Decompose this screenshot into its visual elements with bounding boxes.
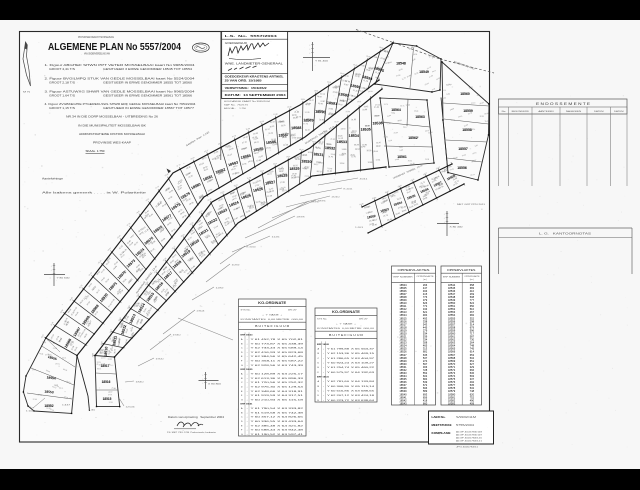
svg-text:17.74: 17.74 [303,123,308,125]
svg-text:Y 62 928,56: Y 62 928,56 [251,365,277,367]
svg-text:10.91: 10.91 [351,134,356,136]
svg-text:GOEDGEKEUR: GOEDGEKEUR [225,42,247,45]
svg-text:X 63 688,65: X 63 688,65 [351,391,375,393]
svg-text:+: + [202,378,203,380]
svg-text:G: G [241,399,243,401]
svg-text:8.47: 8.47 [388,123,391,125]
svg-text:Y 62 153,36: Y 62 153,36 [327,353,350,355]
svg-text:Y 61 286,65: Y 61 286,65 [327,358,350,360]
svg-text:GESITUEER IN ERWE GENOMMER 185: GESITUEER IN ERWE GENOMMER 18561 TOT 185… [103,94,193,97]
svg-text:ALGF 4045784/120: ALGF 4045784/120 [456,437,483,440]
svg-text:Y 62 976,30: Y 62 976,30 [251,386,277,388]
svg-text:M N: M N [23,92,31,94]
svg-text:L.S. No. 5557/2004: L.S. No. 5557/2004 [225,34,278,38]
svg-text:HOUDANIGE KAART No 9965/2004: HOUDANIGE KAART No 9965/2004 [224,100,271,103]
svg-text:1:437: 1:437 [62,405,71,407]
svg-text:E-3010: E-3010 [247,247,257,249]
svg-text:20.22: 20.22 [408,160,412,162]
svg-text:+: + [444,221,445,223]
svg-text:X 63 433,64: X 63 433,64 [277,421,304,423]
svg-text:+: + [444,217,445,219]
svg-text:33.83: 33.83 [108,359,112,361]
svg-text:13.69: 13.69 [342,149,347,151]
svg-text:24.57: 24.57 [305,130,310,132]
svg-text:34.14: 34.14 [47,339,51,341]
svg-text:10.39: 10.39 [273,114,277,116]
svg-text:21.13: 21.13 [471,102,475,104]
svg-text:18515: 18515 [103,397,112,401]
svg-text:29.44: 29.44 [365,125,370,127]
svg-text:IN DIE MUNISIPALITEIT MOSSELBA: IN DIE MUNISIPALITEIT MOSSELBAAI BK [78,123,146,127]
svg-text:Y 60 128,89: Y 60 128,89 [251,374,277,376]
svg-text:14.12: 14.12 [338,138,343,140]
svg-text:Y 81 400: Y 81 400 [315,61,329,63]
svg-text:18.89: 18.89 [297,138,302,140]
svg-text:Y 60 616,86: Y 60 616,86 [327,391,350,393]
svg-text:Y 60 588,44: Y 60 588,44 [251,430,277,432]
svg-text:11.86: 11.86 [362,144,367,146]
svg-text:21.76: 21.76 [327,168,332,170]
svg-text:DATUM: DATUM [614,110,624,113]
svg-text:Y 60 358,11: Y 60 358,11 [251,361,277,363]
svg-text:14.67: 14.67 [100,349,102,354]
svg-text:21.86: 21.86 [294,112,299,114]
svg-text:KOMPILASIE: KOMPILASIE [432,431,451,435]
svg-text:X 63 597,41: X 63 597,41 [277,434,304,436]
svg-text:31.49: 31.49 [53,348,57,350]
svg-text:Y 61 452,78: Y 61 452,78 [251,339,277,341]
svg-text:+: + [202,374,203,376]
svg-text:X 64 826,65: X 64 826,65 [277,417,304,419]
svg-text:X 80 800: X 80 800 [208,384,222,386]
svg-text:ERF 18520: ERF 18520 [317,344,330,346]
svg-text:17.52: 17.52 [375,104,380,106]
svg-text:26.91: 26.91 [32,369,36,371]
svg-text:G: G [241,434,243,436]
svg-text:X 63 404,97: X 63 404,97 [351,358,375,360]
svg-text:Y 62 384,56: Y 62 384,56 [251,356,277,358]
svg-text:X 65 563,37: X 65 563,37 [351,349,375,351]
svg-text:31.69: 31.69 [32,399,36,401]
svg-text:4. Figuur ZVGBKEGHIE PTGEREKLS: 4. Figuur ZVGBKEGHIE PTGEREKLSWL SHWR ER… [45,103,197,106]
svg-text:660: 660 [423,401,428,405]
svg-text:30.12: 30.12 [97,368,101,370]
svg-text:X 64 192,63: X 64 192,63 [351,372,375,374]
svg-text:P.S. SMIT PR.L 1234 Professi: P.S. SMIT PR.L 1234 Professionele Landme… [167,431,216,434]
svg-text:29.93: 29.93 [317,96,322,98]
svg-text:Y 62 781,60: Y 62 781,60 [327,381,350,383]
svg-text:33.17: 33.17 [302,155,307,157]
svg-text:23.80: 23.80 [414,111,418,113]
svg-text:31.83: 31.83 [351,119,356,121]
svg-text:ERF 18533: ERF 18533 [241,335,254,337]
svg-text:18.62: 18.62 [314,90,318,92]
svg-text:18535: 18535 [360,127,370,131]
svg-text:18.48: 18.48 [282,137,287,139]
svg-text:27.71: 27.71 [304,176,309,178]
svg-text:18553: 18553 [44,390,54,395]
svg-text:Y 60 210,94: Y 60 210,94 [251,399,277,401]
svg-text:KONSTANTES 0,00 METRE 000,00: KONSTANTES 0,00 METRE 000,00 [317,327,375,330]
svg-text:VERWYSING: 15/4/26/2: VERWYSING: 15/4/26/2 [225,87,268,90]
svg-text:Y 60 773,87: Y 60 773,87 [251,343,277,345]
svg-text:Y 61 519,58: Y 61 519,58 [251,412,277,414]
svg-text:32.92: 32.92 [293,165,298,167]
svg-text:X 63 333,82: X 63 333,82 [277,408,304,410]
svg-text:WG 25°: WG 25° [359,319,368,321]
svg-text:19.47: 19.47 [309,100,314,102]
svg-text:14.67: 14.67 [286,156,290,158]
svg-text:16.14: 16.14 [295,177,300,179]
svg-text:+: + [51,273,52,275]
svg-text:14.51: 14.51 [109,402,113,404]
svg-text:+: + [51,269,52,271]
svg-text:GROOT 4,41 T/S: GROOT 4,41 T/S [49,68,75,71]
svg-text:11.46: 11.46 [361,146,366,148]
svg-text:26.26: 26.26 [367,150,372,152]
svg-text:ALGF 4045784/119: ALGF 4045784/119 [456,434,483,437]
svg-text:15.60: 15.60 [318,110,323,112]
svg-text:19.25: 19.25 [299,149,303,151]
svg-text:16.47: 16.47 [376,142,381,144]
svg-text:ALGF 4045784/121: ALGF 4045784/121 [456,440,483,443]
svg-text:X 65 642,45: X 65 642,45 [277,356,304,358]
svg-text:18560: 18560 [460,92,470,96]
svg-text:24.29: 24.29 [303,160,308,162]
svg-text:10.88: 10.88 [92,353,94,357]
svg-text:18543: 18543 [399,401,407,405]
svg-text:LAER No.: LAER No. [432,415,446,419]
svg-text:GROOT 2,18 T/S: GROOT 2,18 T/S [49,81,75,84]
svg-text:17.98: 17.98 [406,104,410,106]
svg-text:34.23: 34.23 [109,350,111,355]
svg-text:18588: 18588 [291,126,301,130]
svg-text:ERF 18551: ERF 18551 [241,404,254,406]
svg-text:ALGF 4045784/118: ALGF 4045784/118 [456,430,483,433]
svg-text:16.18: 16.18 [282,133,287,135]
svg-text:DATUM: 13 SEPTEMBER 2004: DATUM: 13 SEPTEMBER 2004 [225,93,287,97]
svg-text:PROVINSIEKOERANT MOSSELBAAI: PROVINSIEKOERANT MOSSELBAAI [78,36,114,39]
svg-text:18.14: 18.14 [282,173,287,175]
svg-text:13.25: 13.25 [339,155,344,157]
svg-text:19.62: 19.62 [357,101,361,103]
svg-text:32.67: 32.67 [291,134,296,136]
svg-text:Aantekeninge: Aantekeninge [42,178,64,181]
svg-text:10.90: 10.90 [308,152,313,154]
svg-text:27.48: 27.48 [374,107,379,109]
svg-text:26.28: 26.28 [354,144,359,146]
svg-text:10.16: 10.16 [279,168,284,170]
svg-text:9.84: 9.84 [477,95,481,97]
svg-text:GROOT 1,15 T/S: GROOT 1,15 T/S [49,107,75,110]
svg-text:13.73: 13.73 [341,128,346,130]
svg-text:32.21: 32.21 [282,190,287,192]
svg-text:28.34: 28.34 [301,99,305,101]
svg-text:X 65 460,22: X 65 460,22 [351,367,375,369]
svg-text:1. Figuur ABGHEF SHWN PPT VETE: 1. Figuur ABGHEF SHWN PPT VETER MOSSELBA… [45,64,196,67]
svg-text:BESONDERS: BESONDERS [512,111,530,113]
svg-text:X 65 252,32: X 65 252,32 [277,382,304,384]
svg-text:+: + [51,265,52,267]
svg-text:X 65 823,68: X 65 823,68 [277,352,304,354]
svg-text:13.91: 13.91 [318,103,323,105]
svg-text:X 63 638,64: X 63 638,64 [351,400,375,402]
svg-text:B U I T E F I G U U R: B U I T E F I G U U R [255,324,289,328]
svg-text:18558: 18558 [462,128,472,132]
svg-text:GROOT 1,64 T/S: GROOT 1,64 T/S [49,94,75,97]
svg-text:Y 61 919,59: Y 61 919,59 [251,395,277,397]
svg-text:28.60: 28.60 [376,146,381,148]
svg-text:26.17: 26.17 [304,166,309,168]
svg-text:+ Y NASIE +: + Y NASIE + [262,313,283,316]
svg-text:28.90: 28.90 [480,116,484,118]
svg-text:28.66: 28.66 [295,159,300,161]
svg-text:X 65 438,39: X 65 438,39 [277,343,304,345]
svg-text:MEETSTUKKE: MEETSTUKKE [432,423,452,427]
svg-text:Y 80 600: Y 80 600 [57,278,71,280]
svg-text:GESITUEER 3 ERWE GENOMMER 1854: GESITUEER 3 ERWE GENOMMER 18545 TOT 1855… [103,68,193,71]
svg-text:32.29: 32.29 [293,117,298,119]
svg-text:MET GRT PPN 2011: MET GRT PPN 2011 [457,204,486,206]
svg-text:KAF No. 75/2175: KAF No. 75/2175 [224,103,249,106]
svg-text:Y 60 575,97: Y 60 575,97 [327,372,350,374]
svg-text:Y 62 348,66: Y 62 348,66 [251,391,277,393]
svg-text:X 63 109,27: X 63 109,27 [351,363,375,365]
svg-text:B U I T E F I G U U R: B U I T E F I G U U R [329,333,363,337]
svg-text:+: + [202,382,203,384]
svg-text:33.17: 33.17 [403,127,407,129]
svg-text:GESITUEER IN ERWE GENOMMER 185: GESITUEER IN ERWE GENOMMER 18555 TOT 185… [103,81,193,84]
svg-text:25 VAN ORD. 15/1985: 25 VAN ORD. 15/1985 [225,80,263,83]
svg-text:VAN ONDERVERDELING VAN: VAN ONDERVERDELING VAN [84,53,110,56]
svg-text:11.14: 11.14 [442,90,446,92]
svg-text:WNE. LANDMETER-GENERAAL: WNE. LANDMETER-GENERAAL [225,62,284,65]
svg-text:18563: 18563 [415,115,425,119]
svg-text:23.96: 23.96 [319,119,324,121]
svg-text:(m²): (m²) [470,278,474,281]
svg-text:18556: 18556 [457,166,467,170]
svg-text:KONSTANTES 0,00 METRE 000,00: KONSTANTES 0,00 METRE 000,00 [241,318,305,321]
svg-text:NR.34 IN DIE DORP MOSSELBAAI -: NR.34 IN DIE DORP MOSSELBAAI - UITBREIDI… [66,115,159,119]
svg-text:X 65 896,33: X 65 896,33 [277,378,304,380]
svg-text:X 65 129,54: X 65 129,54 [277,386,304,388]
svg-text:26.73: 26.73 [114,349,116,354]
svg-text:29.54: 29.54 [373,151,378,153]
svg-text:8.56: 8.56 [446,93,450,95]
svg-text:17.78: 17.78 [305,112,310,114]
svg-text:18583: 18583 [448,401,456,405]
svg-text:X 65 115,18: X 65 115,18 [277,399,304,401]
svg-text:15.14: 15.14 [273,163,277,165]
svg-text:X 64 318,91: X 64 318,91 [277,391,304,393]
svg-text:X 65 742,38: X 65 742,38 [277,412,304,414]
svg-text:17.38: 17.38 [280,182,285,184]
svg-text:16.86: 16.86 [304,121,309,123]
svg-text:ALGEMENE PLAN No 5557/2004: ALGEMENE PLAN No 5557/2004 [48,42,181,53]
svg-text:Y 62 385,48: Y 62 385,48 [251,425,277,427]
svg-text:34.68: 34.68 [395,159,399,161]
svg-text:Y 60 357,12: Y 60 357,12 [251,417,277,419]
svg-text:ERF 18531: ERF 18531 [317,377,330,379]
svg-text:19.29: 19.29 [69,398,73,400]
svg-text:KO-ORDINATE: KO-ORDINATE [258,301,286,305]
svg-text:32.21: 32.21 [97,362,101,364]
svg-text:30.18: 30.18 [283,144,288,146]
svg-text:Y 61 720,56: Y 61 720,56 [251,382,277,384]
svg-text:ERF 18535: ERF 18535 [241,369,254,371]
svg-text:NAGESIEN: NAGESIEN [566,110,582,113]
svg-text:Y 60 336,55: Y 60 336,55 [251,421,277,423]
svg-text:23.94: 23.94 [355,149,360,151]
svg-text:1:1026: 1:1026 [26,411,36,413]
svg-text:ERF NUMMER: ERF NUMMER [394,276,414,278]
svg-text:18516: 18516 [102,380,111,384]
svg-text:8.24: 8.24 [472,129,475,131]
svg-text:L. G. KANTOORNOTAS: L. G. KANTOORNOTAS [539,232,591,236]
svg-text:ERF NUMMER: ERF NUMMER [443,276,461,278]
svg-text:5755/2004: 5755/2004 [456,424,475,427]
svg-text:OPPERVLAKTES: OPPERVLAKTES [447,268,476,272]
svg-text:KO-ORDINATE: KO-ORDINATE [332,310,360,314]
svg-text:12.11: 12.11 [327,147,332,149]
svg-text:26.62: 26.62 [326,143,331,145]
svg-text:21.41: 21.41 [331,154,336,156]
svg-text:24.94: 24.94 [368,91,372,93]
svg-text:15.67: 15.67 [485,120,489,122]
svg-text:13.42: 13.42 [364,106,369,108]
svg-text:24.28: 24.28 [425,159,429,161]
svg-text:WG 25°: WG 25° [288,310,297,312]
svg-text:E-4011: E-4011 [344,189,354,191]
svg-text:OPPERVLAKTES: OPPERVLAKTES [398,268,430,272]
svg-text:409: 409 [470,401,475,405]
svg-text:10.22: 10.22 [339,141,344,143]
svg-text:22.27: 22.27 [334,121,338,123]
svg-text:S/9932/11M: S/9932/11M [456,416,476,419]
svg-text:22.94: 22.94 [316,112,321,114]
svg-text:X 63 743,39: X 63 743,39 [277,365,304,367]
svg-text:Y 62 733,43: Y 62 733,43 [251,348,277,350]
svg-text:19.84: 19.84 [306,103,311,105]
svg-text:OPPERVLAKTE: OPPERVLAKTE [417,275,435,278]
svg-text:22.11: 22.11 [62,357,66,359]
svg-text:17.51: 17.51 [376,159,381,161]
svg-text:OPPERVLAKTE: OPPERVLAKTE [464,275,480,278]
svg-text:X 65 469,15: X 65 469,15 [351,353,375,355]
svg-text:+: + [444,213,445,215]
svg-text:18548: 18548 [396,62,406,66]
svg-text:18.61: 18.61 [104,350,106,355]
svg-text:13.54: 13.54 [340,163,345,165]
svg-text:+: + [309,44,310,46]
svg-text:AANTEKEN: AANTEKEN [538,110,554,113]
svg-text:GOEDGEKEUR KRAGTENS ARTIKEL: GOEDGEKEUR KRAGTENS ARTIKEL [225,76,285,79]
svg-text:21.52: 21.52 [330,139,335,141]
svg-text:12.51: 12.51 [351,156,356,158]
svg-text:31.44: 31.44 [328,156,333,158]
svg-text:12546: 12546 [126,407,136,409]
svg-text:SYS No.: SYS No. [317,319,327,321]
svg-text:18529: 18529 [289,167,299,171]
svg-text:+ Y NASIE +: + Y NASIE + [336,322,357,325]
svg-text:24.34: 24.34 [394,132,398,134]
svg-text:11.30: 11.30 [327,170,332,172]
svg-text:18557: 18557 [458,147,468,151]
svg-text:Y 61 254,74: Y 61 254,74 [327,367,350,369]
svg-text:27.61: 27.61 [108,394,112,396]
svg-text:Alle bakens gemerk . . . . is: Alle bakens gemerk . . . . is W. Polarit… [42,192,148,195]
svg-text:Datum van opmeting September: Datum van opmeting September 2004 [168,416,225,419]
svg-text:AFGOAL: 1:750: AFGOAL: 1:750 [224,107,247,110]
svg-text:Y 60 924,24: Y 60 924,24 [327,363,350,365]
svg-text:17.93: 17.93 [374,115,379,117]
svg-text:X 64 321,82: X 64 321,82 [277,425,304,427]
svg-text:X 65 702,81: X 65 702,81 [277,339,304,341]
svg-text:29.57: 29.57 [292,173,297,175]
svg-text:X 64 317,51: X 64 317,51 [277,395,304,397]
svg-text:(m²): (m²) [423,278,427,281]
svg-text:X 65 115,14: X 65 115,14 [351,386,376,388]
svg-text:X 63 424,18: X 63 424,18 [351,395,375,397]
svg-text:X 80 400: X 80 400 [450,227,464,229]
svg-text:Y 62 613,36: Y 62 613,36 [251,378,277,380]
svg-text:3. Figuur ASTUWXG SHWR VAN GED: 3. Figuur ASTUWXG SHWR VAN GEDLE MOSSELB… [45,90,196,93]
svg-text:15.62: 15.62 [399,146,403,148]
svg-text:X 64 133,84: X 64 133,84 [351,381,375,383]
svg-text:Y 61 799,88: Y 61 799,88 [327,349,350,351]
svg-text:12.40: 12.40 [415,137,419,139]
svg-text:22.68: 22.68 [362,109,367,111]
svg-text:15.23: 15.23 [338,135,343,137]
svg-text:25.61: 25.61 [55,363,59,365]
svg-text:X 65 587,22: X 65 587,22 [277,361,304,363]
svg-text:Y 61 790,54: Y 61 790,54 [251,408,277,410]
svg-text:20.61: 20.61 [352,131,357,133]
svg-text:13.76: 13.76 [384,104,388,106]
svg-text:31.74: 31.74 [281,187,286,189]
svg-text:23.35: 23.35 [346,111,350,113]
svg-text:DATUM: DATUM [594,110,604,113]
svg-text:15.39: 15.39 [287,106,291,108]
svg-text:22.14: 22.14 [279,121,284,123]
svg-text:12.69: 12.69 [368,162,373,164]
svg-text:18549: 18549 [419,70,429,74]
svg-text:SYS No.: SYS No. [241,310,251,312]
svg-text:SKAAL 1:750: SKAAL 1:750 [86,149,106,153]
svg-text:Y 62 416,93: Y 62 416,93 [251,352,277,354]
svg-text:1:203: 1:203 [355,227,364,229]
svg-text:X 63 942,48: X 63 942,48 [277,430,304,432]
svg-text:Y 60 223,72: Y 60 223,72 [327,400,350,402]
svg-text:X 65 589,14: X 65 589,14 [277,348,304,350]
svg-text:E N D O S S E M E N T E: E N D O S S E M E N T E [536,102,590,106]
svg-text:JPG 4045784/11: JPG 4045784/11 [456,447,478,449]
svg-text:G: G [241,365,243,367]
svg-text:24.42: 24.42 [451,120,455,122]
svg-text:Y 60 306,90: Y 60 306,90 [327,386,350,388]
svg-text:Y 62 207,12: Y 62 207,12 [327,395,350,397]
svg-text:2. Figuur BVGILMPQ STUK VAN GE: 2. Figuur BVGILMPQ STUK VAN GEDLE MOSSEL… [45,77,196,80]
svg-text:+: + [309,52,310,54]
svg-text:Y 61 190,52: Y 61 190,52 [251,434,277,436]
svg-text:23.21: 23.21 [281,125,286,127]
svg-text:X 63 225,17: X 63 225,17 [277,374,304,376]
svg-text:PROVINSIE WES-KAAP: PROVINSIE WES-KAAP [93,140,131,144]
svg-text:+: + [309,48,310,50]
